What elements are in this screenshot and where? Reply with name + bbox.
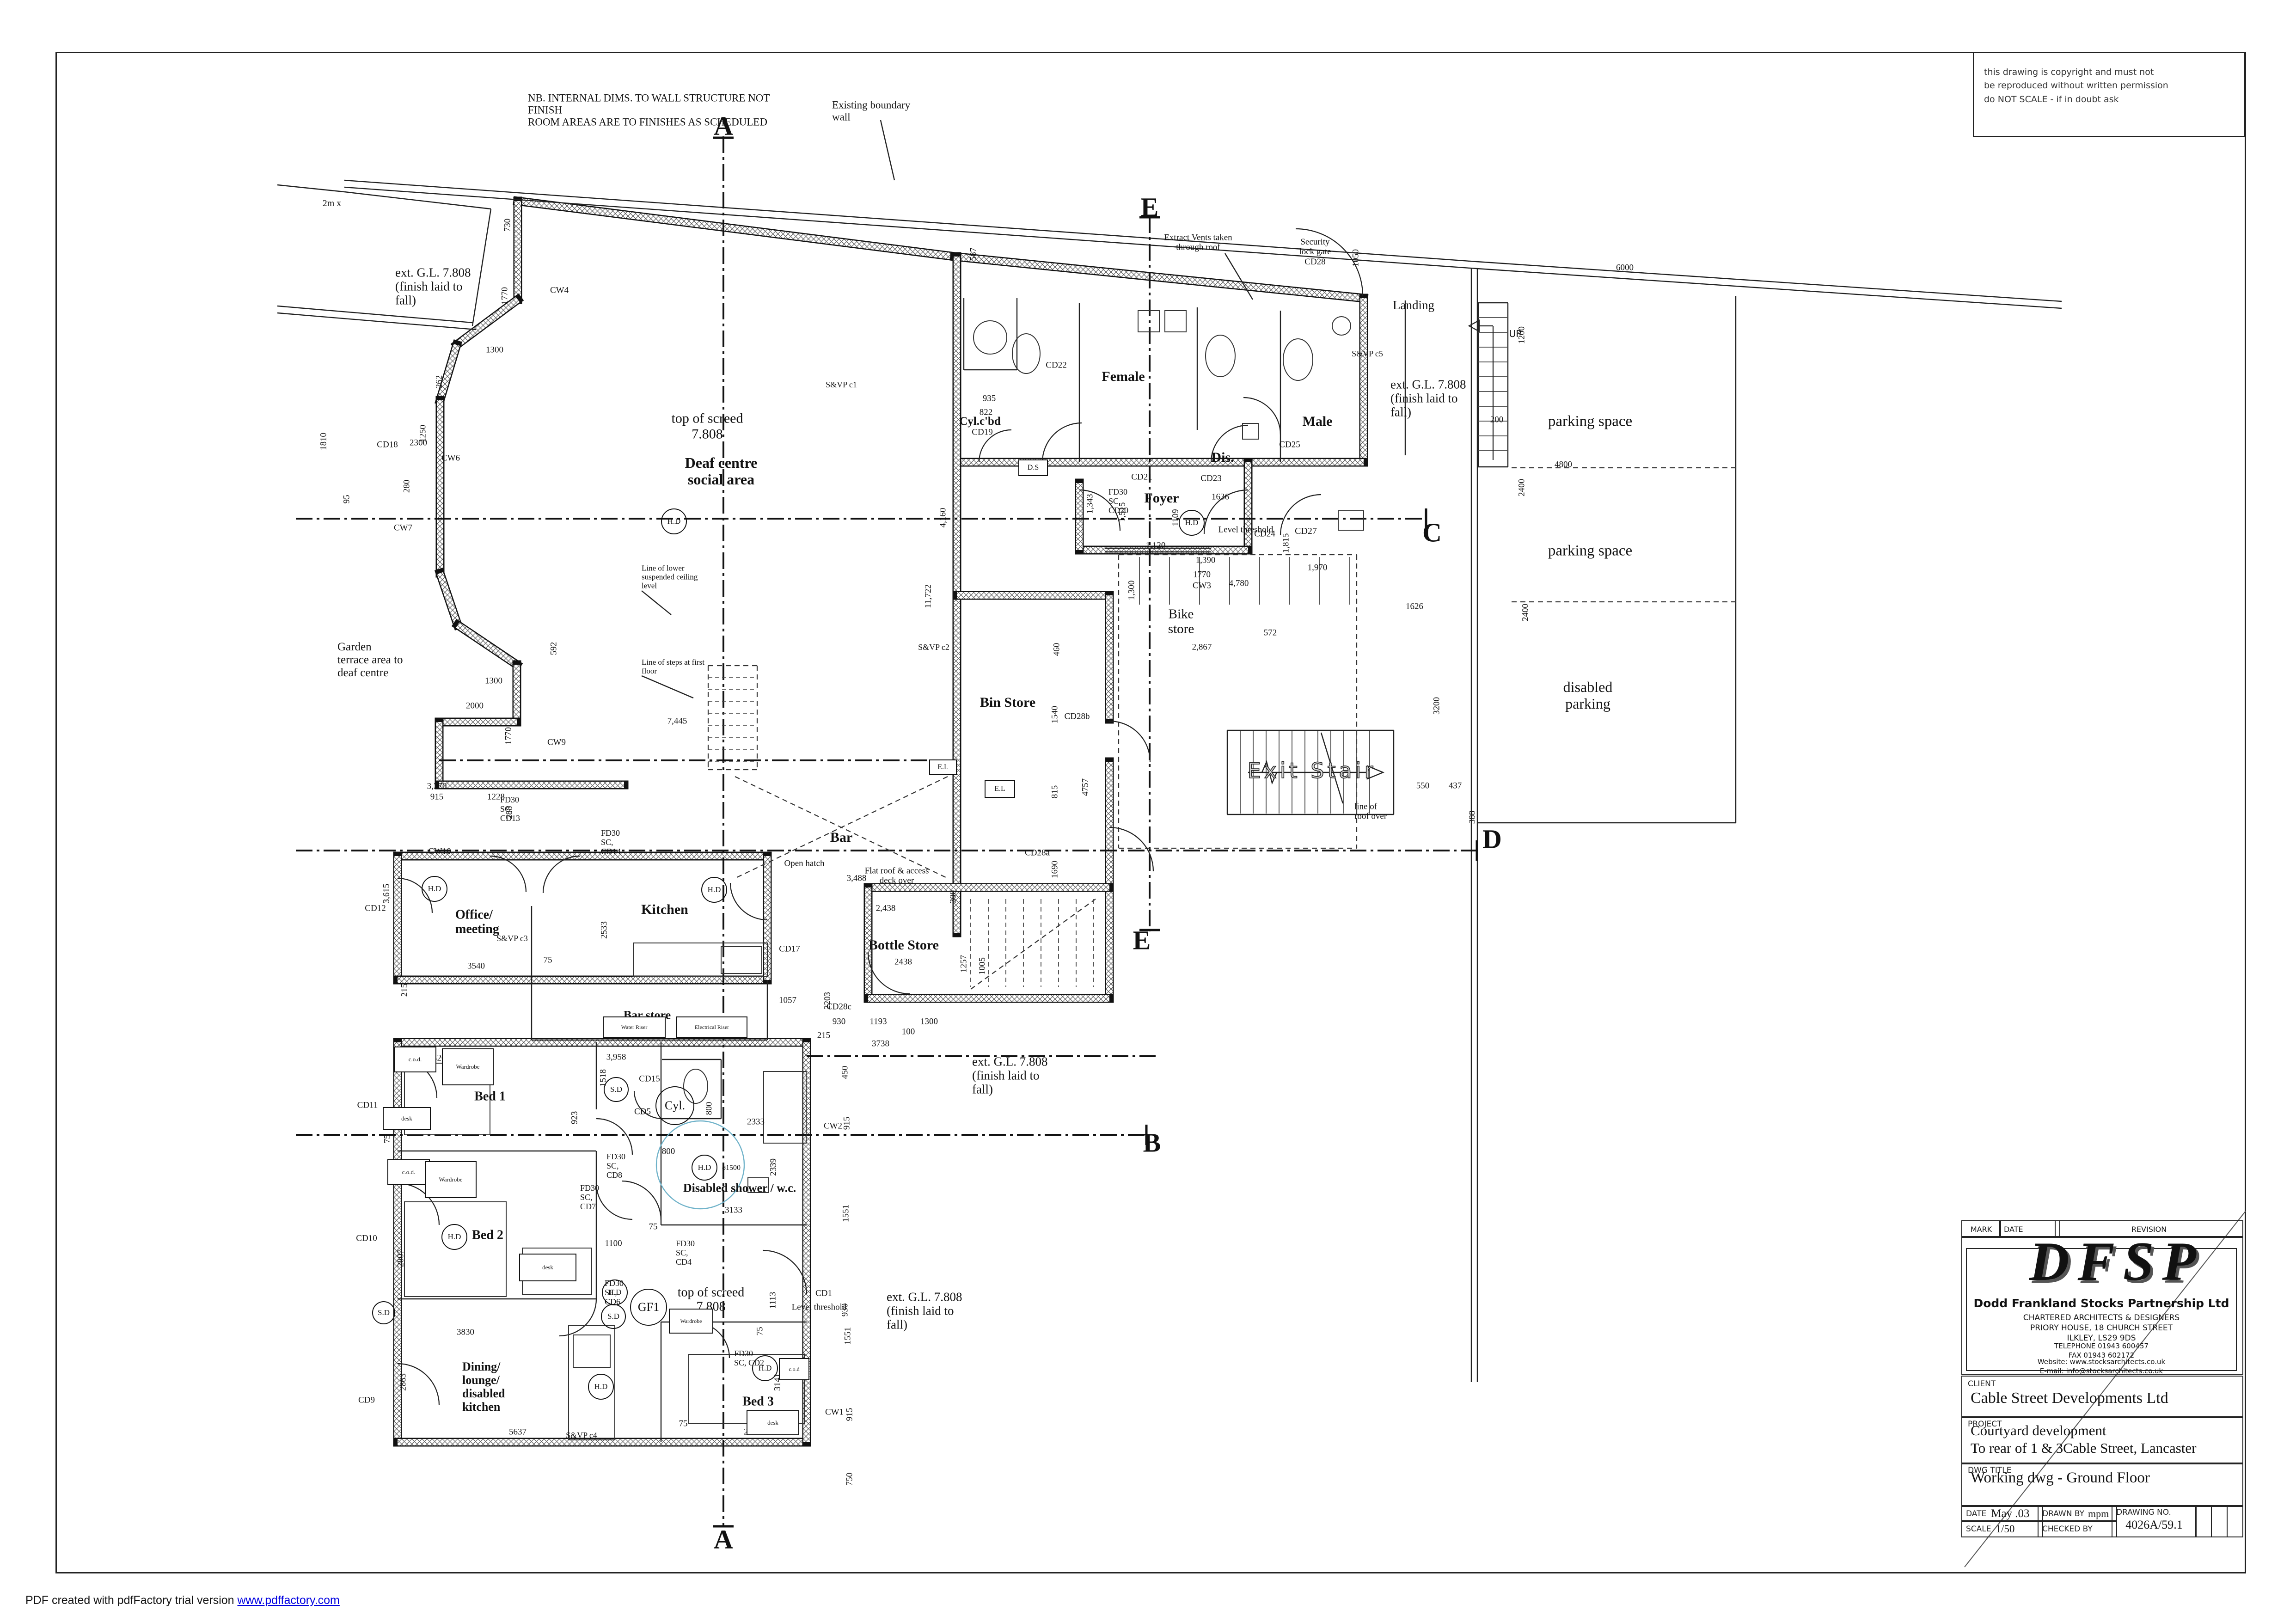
dim-75c: 75 [649, 1222, 658, 1231]
dim-1810: 1810 [318, 433, 328, 450]
firm-logo: DFSP [2029, 1230, 2204, 1293]
door-cd4: FD30SC,CD4 [676, 1239, 695, 1267]
project-line1: Courtyard development [1971, 1422, 2242, 1439]
dim-1551b: 1551 [843, 1327, 852, 1345]
lbl-cd17: CD17 [779, 944, 800, 954]
section-marker-d: D [1482, 824, 1502, 855]
dim-923: 923 [569, 1111, 579, 1125]
dim-300: 300 [948, 890, 958, 904]
box-wardrobe: Wardrobe [442, 1048, 494, 1085]
lbl-cd22: CD22 [1046, 360, 1066, 370]
tag-hd: H.D [752, 1355, 778, 1381]
room-bar: Bar [830, 830, 852, 845]
tag-cyl: Cyl. [655, 1086, 694, 1125]
room-landing: Landing [1393, 298, 1434, 312]
lbl-cw2: CW2 [824, 1121, 842, 1131]
tag-hd: H.D [588, 1374, 614, 1400]
room-dis: Dis. [1211, 450, 1234, 465]
dim-280: 280 [402, 480, 411, 493]
dim-2339: 2339 [768, 1158, 778, 1176]
room-male: Male [1303, 414, 1333, 429]
dim-450: 450 [840, 1066, 850, 1079]
dim-1626: 1626 [1406, 601, 1423, 611]
dim-930a: 930 [833, 1016, 846, 1026]
lbl-cd9: CD9 [358, 1395, 375, 1405]
box-wardrobe: Wardrobe [425, 1161, 477, 1198]
dim-75e: 75 [679, 1419, 688, 1428]
dim-2333: 2333 [747, 1117, 765, 1126]
lbl-cd28c: CD28c [827, 1002, 851, 1011]
dim-2533: 2533 [599, 921, 609, 939]
note-extract-vents: Extract Vents takenthrough roof [1164, 233, 1232, 253]
tag-sd: S.D [601, 1304, 626, 1329]
dim-3958: 3,958 [606, 1052, 626, 1062]
dim-1057: 1057 [779, 995, 796, 1005]
dim-11722: 11,722 [923, 584, 933, 608]
dim-460: 460 [1052, 643, 1061, 656]
dim-2300: 2300 [410, 438, 427, 447]
revision-grid [2195, 1505, 2243, 1537]
lbl-cd24: CD24 [1254, 529, 1275, 539]
floor-plan [0, 0, 2296, 1622]
note-internal-dims: NB. INTERNAL DIMS. TO WALL STRUCTURE NOT… [528, 92, 770, 128]
dim-2000: 2000 [466, 701, 484, 710]
dim-3370: 3,370 [427, 781, 447, 791]
dim-1690: 1690 [1050, 861, 1059, 878]
tag-hd: H.D [701, 877, 727, 903]
box-electrical-riser: Electrical Riser [676, 1016, 747, 1038]
pdffactory-link[interactable]: www.pdffactory.com [238, 1594, 340, 1607]
dim-1300c: 1,300 [1127, 581, 1136, 600]
lbl-cd21: CD21 [1131, 472, 1152, 482]
dim-1300a: 1300 [486, 345, 503, 355]
dim-1300d: 1300 [920, 1016, 938, 1026]
lbl-cd25: CD25 [1279, 440, 1300, 449]
door-cd8: FD30SC,CD8 [606, 1152, 625, 1180]
dim-1200: 1200 [1517, 326, 1526, 344]
box-c-o-d-: c.o.d. [394, 1047, 436, 1072]
lbl-cw9: CW9 [547, 737, 566, 747]
lbl-cw10: CW10 [428, 846, 451, 856]
firm-contact: Website: www.stocksarchitects.co.ukE-mai… [2038, 1358, 2165, 1376]
dim-6000: 6000 [1616, 263, 1634, 272]
drawing-no: 4026A/59.1 [2112, 1518, 2196, 1532]
tag-sd: S.D [604, 1077, 629, 1102]
dim-75a: 75 [544, 955, 552, 965]
firm-address: CHARTERED ARCHITECTS & DESIGNERSPRIORY H… [2023, 1313, 2180, 1343]
door-cd7: FD30SC,CD7 [580, 1183, 599, 1211]
note-open-hatch: Open hatch [784, 858, 824, 868]
mark-header: MARK [1961, 1220, 2001, 1238]
room-bin-store: Bin Store [980, 695, 1035, 710]
dim-1113: 1113 [768, 1292, 778, 1309]
dim-1515: 1,515 [1117, 502, 1127, 522]
area-disabled-parking: disabledparking [1563, 679, 1613, 712]
dim-815a: 815 [1050, 785, 1059, 799]
note-ext-gl-2: ext. G.L. 7.808(finish laid tofall) [1390, 378, 1466, 420]
dim-800a: 800 [704, 1102, 714, 1115]
lbl-cd28b: CD28b [1065, 711, 1090, 721]
room-deaf-centre: Deaf centresocial area [685, 455, 758, 488]
dim-750: 750 [845, 1473, 854, 1486]
svp-c4: S&VP c4 [566, 1431, 597, 1440]
area-parking-2: parking space [1548, 543, 1632, 560]
dim-822: 822 [980, 407, 993, 417]
dim-75b: 75 [382, 1135, 392, 1144]
lbl-cw3: CW3 [1193, 581, 1211, 590]
room-top-screed-hall: top of screed7.808 [672, 410, 743, 441]
note-cd27: CD27 [1295, 526, 1317, 536]
room-bottle-store: Bottle Store [869, 937, 939, 953]
box-desk: desk [747, 1410, 799, 1435]
dim-935: 935 [983, 393, 996, 403]
room-kitchen: Kitchen [641, 902, 688, 918]
date-cell: DATEMay .03 [1961, 1505, 2043, 1522]
lbl-cd5: CD5 [634, 1107, 651, 1116]
lbl-cd10: CD10 [356, 1233, 377, 1243]
dim-200: 200 [1490, 415, 1504, 424]
dim-7445: 7,445 [667, 716, 687, 726]
dim-915a: 915 [430, 792, 444, 802]
dim-1770c: 1770 [1193, 569, 1211, 579]
box-c-o-d-: c.o.d. [387, 1159, 430, 1185]
dim-388: 388 [1467, 811, 1477, 824]
drawing-no-cell: DRAWING NO. 4026A/59.1 [2112, 1505, 2197, 1537]
tag-hd: H.D [692, 1155, 717, 1181]
dim-2438a: 2,438 [876, 903, 896, 913]
lbl-cw1: CW1 [825, 1407, 844, 1417]
dim-1343: 1,343 [1085, 494, 1095, 514]
dim-215b: 215 [399, 984, 409, 997]
lbl-cd12: CD12 [365, 903, 386, 913]
project-line2: To rear of 1 & 3Cable Street, Lancaster [1971, 1440, 2242, 1457]
note-flat-roof: Flat roof & accessdeck over [865, 866, 929, 886]
lbl-cd28a: CD28a [1025, 848, 1050, 857]
dim-262: 262 [434, 375, 444, 389]
dim-1050: 1050 [1351, 249, 1360, 267]
dim-3738: 3738 [872, 1039, 889, 1048]
drawn-by-cell: DRAWN BYmpm [2038, 1505, 2117, 1522]
dim-3615: 3,615 [381, 884, 391, 904]
tag-gf1: GF1 [630, 1289, 667, 1326]
lbl-cd11: CD11 [357, 1100, 378, 1110]
dim-1300b: 1300 [485, 676, 502, 686]
dim-3133: 3133 [725, 1205, 742, 1215]
tag-hd: H.D [661, 508, 687, 534]
lbl-cd18: CD18 [377, 440, 398, 449]
drawing-sheet: this drawing is copyright and must not b… [0, 0, 2296, 1622]
client-name: Cable Street Developments Ltd [1971, 1389, 2242, 1407]
room-bed3: Bed 3 [742, 1394, 774, 1408]
dim-4757: 4757 [1080, 778, 1090, 796]
box-desk: desk [383, 1107, 431, 1130]
dim-75d: 75 [755, 1327, 765, 1336]
box-d-s: D.S [1018, 459, 1048, 476]
room-office-meeting: Office/meeting [455, 908, 499, 937]
area-parking-1: parking space [1548, 413, 1632, 430]
dim-2400b: 2400 [1520, 604, 1530, 621]
svp-c1: S&VP c1 [826, 380, 857, 389]
dim-1005: 1005 [977, 957, 987, 975]
project-panel: PROJECT Courtyard development To rear of… [1961, 1416, 2243, 1464]
dim-1540: 1540 [1050, 706, 1059, 723]
svp-c2: S&VP c2 [918, 643, 949, 652]
dim-215a: 215 [817, 1030, 831, 1040]
tag-hd: H.D [441, 1224, 467, 1250]
box-e-l: E.L [985, 780, 1015, 798]
note-roof-over: line ofroof over [1354, 802, 1387, 822]
note-lower-ceiling: Line of lowersuspended ceilinglevel [642, 563, 698, 590]
room-disabled-shower: Disabled shower / w.c. [683, 1181, 796, 1194]
dim-1770b: 1770 [503, 727, 513, 745]
dim-2438b: 2438 [894, 957, 912, 967]
section-marker-e: E [1141, 192, 1159, 223]
dim-1970: 1,970 [1308, 563, 1328, 572]
room-dining: Dining/lounge/disabledkitchen [462, 1360, 505, 1414]
dim-550: 550 [1416, 781, 1430, 790]
note-ext-gl-1: ext. G.L. 7.808(finish laid tofall) [395, 266, 471, 308]
tag-hd: H.D [1179, 510, 1205, 536]
dim-587: 587 [968, 248, 978, 261]
lbl-cw4: CW4 [550, 285, 569, 295]
box-e-l: E.L [929, 759, 957, 775]
box-water-riser: Water Riser [603, 1016, 666, 1038]
dim-2400a: 2400 [1517, 479, 1526, 496]
dim-1100: 1100 [605, 1238, 622, 1248]
lbl-cd23: CD23 [1200, 473, 1221, 483]
door-cd14: FD30SC,CD14 [601, 828, 621, 856]
room-exit-stair: Exit Stair [1248, 759, 1377, 783]
dwg-title: Working dwg - Ground Floor [1971, 1469, 2242, 1487]
tag-sd: S.D [372, 1301, 395, 1324]
box-desk: desk [519, 1254, 576, 1281]
dim-915b: 915 [842, 1117, 851, 1130]
note-ext-gl-4: ext. G.L. 7.808(finish laid tofall) [887, 1290, 962, 1332]
note-steps-first-floor: Line of steps at firstfloor [642, 658, 704, 675]
pdf-footer: PDF created with pdfFactory trial versio… [25, 1594, 340, 1607]
dim-1770a: 1770 [500, 287, 509, 305]
dim-2863: 2863 [398, 1373, 408, 1391]
room-bed2: Bed 2 [472, 1228, 503, 1242]
dim-1815: 1,815 [1281, 533, 1291, 553]
dim-1120: 1,120 [1146, 540, 1166, 550]
note-level-threshold-2: Level threshold [792, 1302, 847, 1312]
dim-1636: 1636 [1212, 492, 1229, 502]
svp-c5: S&VP c5 [1352, 349, 1383, 358]
lbl-cw6: CW6 [441, 453, 460, 463]
dim-3200: 3200 [1432, 697, 1441, 715]
dim-288: 288 [504, 806, 514, 820]
dim-4160: 4,160 [938, 508, 948, 528]
dim-572: 572 [1264, 628, 1277, 637]
dim-915c: 915 [845, 1408, 854, 1421]
dim-592: 592 [549, 642, 558, 655]
tag-hd: H.D [602, 1279, 628, 1305]
dim-1551a: 1551 [841, 1205, 851, 1222]
dim-3540: 3540 [467, 961, 485, 971]
room-female: Female [1102, 369, 1145, 385]
dim-1228: 1228 [487, 792, 505, 802]
lbl-cd19: CD19 [972, 427, 992, 437]
note-2m: 2m x [323, 198, 342, 208]
dim-800b: 800 [662, 1146, 675, 1156]
dim-95: 95 [342, 495, 351, 504]
client-panel: CLIENT Cable Street Developments Ltd [1961, 1376, 2243, 1418]
section-marker-e: E [1133, 925, 1151, 956]
dim-1193: 1193 [869, 1016, 887, 1026]
room-bed1: Bed 1 [474, 1089, 506, 1103]
dwg-title-panel: DWG TITLE Working dwg - Ground Floor [1961, 1463, 2243, 1507]
scale-cell: SCALE1/50 [1961, 1520, 2043, 1537]
section-marker-b: B [1143, 1127, 1161, 1158]
firm-name: Dodd Frankland Stocks Partnership Ltd [1973, 1297, 2229, 1310]
note-ext-gl-3: ext. G.L. 7.808(finish laid tofall) [972, 1055, 1047, 1097]
dim-930b: 930 [840, 1304, 850, 1317]
dim-3830: 3830 [457, 1327, 474, 1337]
dim-1390a: 1,390 [1196, 555, 1216, 565]
lbl-cw7: CW7 [394, 523, 412, 533]
note-existing-boundary: Existing boundarywall [832, 99, 910, 123]
dim-1257: 1257 [959, 955, 968, 973]
dim-4800: 4800 [1555, 459, 1572, 469]
section-marker-c: C [1422, 517, 1442, 548]
room-foyer: Foyer [1145, 490, 1179, 506]
section-marker-a: A [714, 110, 733, 141]
dim-437: 437 [1449, 781, 1462, 790]
box-wardrobe: Wardrobe [669, 1309, 713, 1334]
note-garden-terrace: Gardenterrace area todeaf centre [337, 641, 403, 679]
dim-5637: 5637 [509, 1427, 527, 1437]
tag-hd: H.D [422, 876, 447, 902]
checked-by-cell: CHECKED BY [2038, 1520, 2117, 1537]
dim-2867: 2,867 [1192, 642, 1212, 652]
box-c-o-d: c.o.d [779, 1358, 809, 1380]
section-marker-a: A [714, 1524, 733, 1555]
room-bike-store: Bikestore [1168, 607, 1194, 637]
dim-730: 730 [502, 219, 512, 232]
note-cd1: CD1 [815, 1288, 832, 1298]
note-security-gate: Securitylock gateCD28 [1299, 237, 1331, 267]
dim-o1500: ø1500 [722, 1164, 741, 1172]
dim-100: 100 [902, 1027, 915, 1036]
dim-4780: 4,780 [1229, 578, 1249, 588]
dim-3488: 3,488 [847, 873, 867, 883]
dim-2807: 2807 [396, 1249, 405, 1267]
svp-c3: S&VP c3 [496, 934, 528, 943]
lbl-cd15: CD15 [639, 1074, 660, 1083]
